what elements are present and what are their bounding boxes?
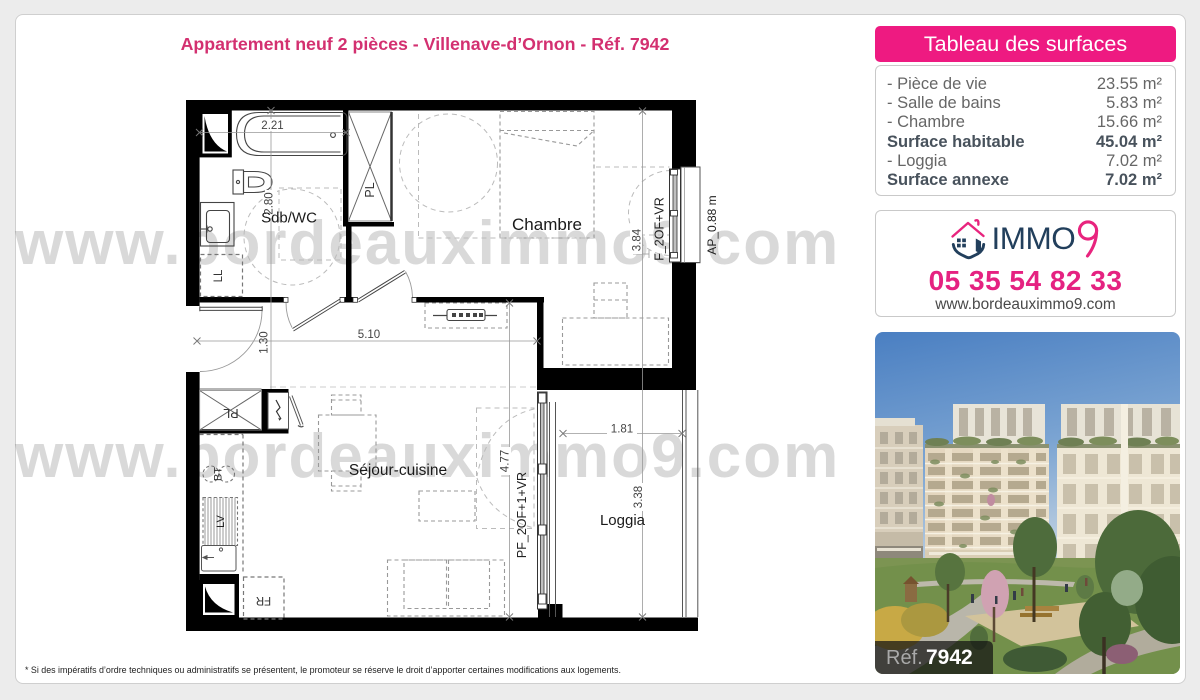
svg-text:F_2OF+VR: F_2OF+VR (653, 197, 667, 261)
svg-text:Loggia: Loggia (600, 512, 646, 529)
svg-text:Séjour-cuisine: Séjour-cuisine (349, 462, 447, 479)
svg-text:PL: PL (363, 182, 377, 197)
svg-text:IMMO: IMMO (992, 220, 1076, 256)
svg-text:Chambre: Chambre (512, 215, 582, 234)
svg-text:5.10: 5.10 (358, 329, 380, 341)
svg-text:3.38: 3.38 (633, 486, 645, 508)
svg-text:1.30: 1.30 (259, 331, 271, 353)
svg-text:LL: LL (213, 269, 225, 282)
svg-text:3.84: 3.84 (632, 228, 644, 251)
svg-text:AP_0.88 m: AP_0.88 m (705, 195, 719, 254)
svg-text:1.81: 1.81 (611, 424, 633, 436)
svg-text:LV: LV (215, 515, 227, 528)
svg-text:PL: PL (223, 406, 238, 420)
svg-text:7942: 7942 (926, 646, 973, 669)
svg-text:FR: FR (256, 594, 271, 606)
svg-text:BT: BT (213, 467, 225, 481)
svg-text:4.77: 4.77 (500, 450, 512, 472)
svg-text:Sdb/WC: Sdb/WC (261, 210, 317, 227)
svg-text:PF_2OF+1+VR: PF_2OF+1+VR (515, 472, 529, 558)
svg-text:Réf.: Réf. (886, 647, 923, 669)
svg-text:2.21: 2.21 (261, 120, 283, 132)
